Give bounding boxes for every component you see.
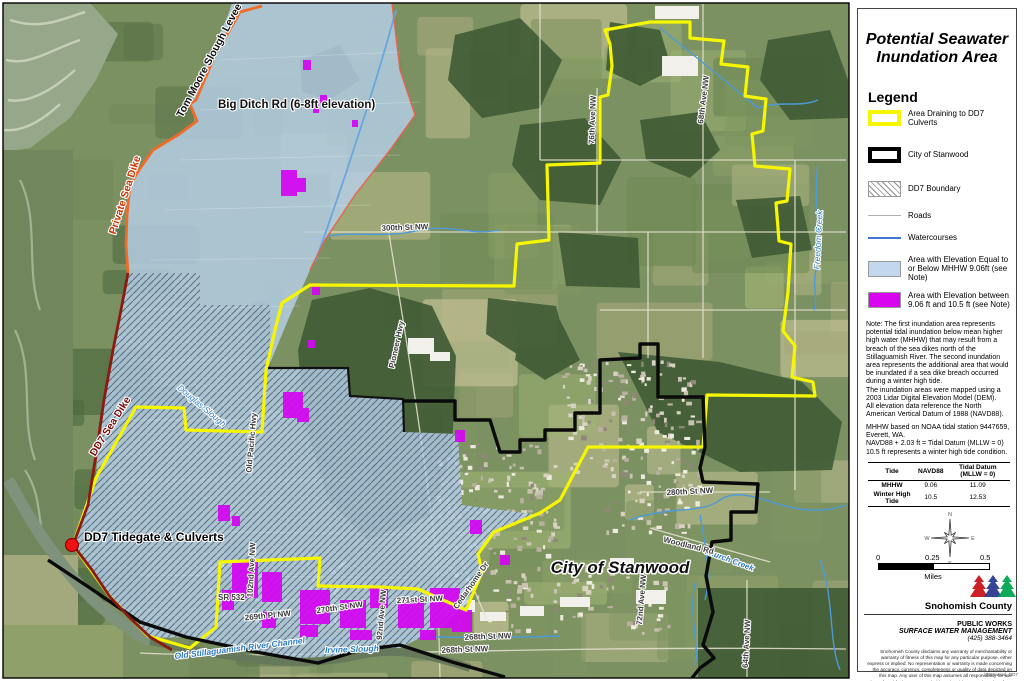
label-big-ditch-rd: Big Ditch Rd (6-8ft elevation) bbox=[218, 99, 375, 111]
map-title-line2: Inundation Area bbox=[858, 49, 1016, 67]
legend-swatch-below-mhhw bbox=[868, 261, 901, 277]
label-76th-ave: 76th Ave NW bbox=[587, 95, 598, 144]
legend-label: DD7 Boundary bbox=[908, 184, 960, 193]
legend-item-dd7-culverts: Area Draining to DD7 Culverts bbox=[868, 109, 1012, 127]
map-title-line1: Potential Seawater bbox=[858, 31, 1016, 49]
label-268th-st-a: 268th St NW bbox=[464, 631, 511, 642]
col-navd88: NAVD88 bbox=[916, 463, 946, 481]
legend-swatch-roads bbox=[868, 215, 901, 216]
table-row: Winter High Tide 10.5 12.53 bbox=[868, 490, 1010, 507]
legend-item-between: Area with Elevation between 9.06 ft and … bbox=[868, 291, 1012, 309]
mhhw-note: MHHW based on NOAA tidal station 9447659… bbox=[866, 424, 1014, 457]
legend-swatch-between bbox=[868, 292, 901, 308]
legend-label: Watercourses bbox=[908, 233, 957, 242]
scale-quarter: 0.25 bbox=[925, 553, 940, 562]
legend-item-below-mhhw: Area with Elevation Equal to or Below MH… bbox=[868, 255, 1012, 283]
label-268th-st-b: 268th St NW bbox=[441, 644, 488, 655]
label-irvine-slough: Irvine Slough bbox=[325, 643, 379, 655]
tide-table-header-row: Tide NAVD88 Tidal Datum (MLLW = 0) bbox=[868, 463, 1010, 481]
cell: MHHW bbox=[868, 480, 916, 490]
tide-table: Tide NAVD88 Tidal Datum (MLLW = 0) MHHW … bbox=[868, 462, 1010, 507]
legend-heading: Legend bbox=[868, 89, 918, 105]
legend-item-city: City of Stanwood bbox=[868, 147, 1012, 163]
legend-item-watercourses: Watercourses bbox=[868, 233, 1012, 242]
org-dept: PUBLIC WORKS bbox=[864, 621, 1012, 628]
legend-item-roads: Roads bbox=[868, 211, 1012, 220]
tidegate-marker bbox=[66, 539, 79, 552]
info-panel: Potential Seawater Inundation Area Legen… bbox=[852, 0, 1024, 681]
label-300th-st: 300th St NW bbox=[381, 222, 428, 233]
snohomish-county-logo-icon bbox=[970, 575, 1016, 599]
legend-swatch-dd7-boundary bbox=[868, 181, 901, 197]
cell: Winter High Tide bbox=[868, 490, 916, 507]
cell: 12.53 bbox=[946, 490, 1010, 507]
legend-label: City of Stanwood bbox=[908, 150, 968, 159]
legend-label: Area Draining to DD7 Culverts bbox=[908, 109, 1012, 127]
panel-border-box: Potential Seawater Inundation Area Legen… bbox=[857, 8, 1017, 672]
scale-bar-graphic bbox=[878, 563, 990, 570]
map-title: Potential Seawater Inundation Area bbox=[858, 31, 1016, 68]
scale-bar-filled bbox=[879, 564, 934, 569]
legend-swatch-city bbox=[868, 147, 901, 163]
legend-label: Area with Elevation between 9.06 ft and … bbox=[908, 291, 1012, 309]
label-city-of-stanwood: City of Stanwood bbox=[551, 558, 690, 577]
legend-label: Area with Elevation Equal to or Below MH… bbox=[908, 255, 1012, 283]
map-layers: Tom Moore Slough Levee Big Ditch Rd (6-8… bbox=[3, 2, 921, 681]
cell: 11.09 bbox=[946, 480, 1010, 490]
table-row: MHHW 9.06 11.09 bbox=[868, 480, 1010, 490]
compass-n: N bbox=[948, 512, 952, 518]
map-sheet: Tom Moore Slough Levee Big Ditch Rd (6-8… bbox=[0, 0, 1024, 681]
legend-swatch-watercourses bbox=[868, 237, 901, 239]
col-tide: Tide bbox=[868, 463, 916, 481]
org-name: Snohomish County bbox=[864, 601, 1012, 615]
scale-half: 0.5 bbox=[980, 553, 990, 562]
legend-label: Roads bbox=[908, 211, 931, 220]
scale-labels: 0 0.25 0.5 bbox=[878, 553, 998, 562]
col-tidal-datum: Tidal Datum (MLLW = 0) bbox=[946, 463, 1010, 481]
department-block: PUBLIC WORKS SURFACE WATER MANAGEMENT (4… bbox=[864, 621, 1012, 642]
scale-zero: 0 bbox=[876, 553, 880, 562]
compass-w: W bbox=[924, 536, 930, 542]
org-division: SURFACE WATER MANAGEMENT bbox=[864, 628, 1012, 635]
label-dd7-tidegate: DD7 Tidegate & Culverts bbox=[84, 530, 224, 544]
compass-e: E bbox=[971, 536, 975, 542]
legend-swatch-dd7-culverts bbox=[868, 110, 901, 126]
label-sr-532: SR 532 bbox=[218, 593, 245, 602]
legend-item-dd7-boundary: DD7 Boundary bbox=[868, 181, 1012, 197]
map-note: Note: The first inundation area represen… bbox=[866, 321, 1012, 419]
document-path: ...\Stanwood_DD7 bbox=[852, 672, 1018, 677]
cell: 9.06 bbox=[916, 480, 946, 490]
cell: 10.5 bbox=[916, 490, 946, 507]
org-phone: (425) 388-3464 bbox=[864, 635, 1012, 642]
